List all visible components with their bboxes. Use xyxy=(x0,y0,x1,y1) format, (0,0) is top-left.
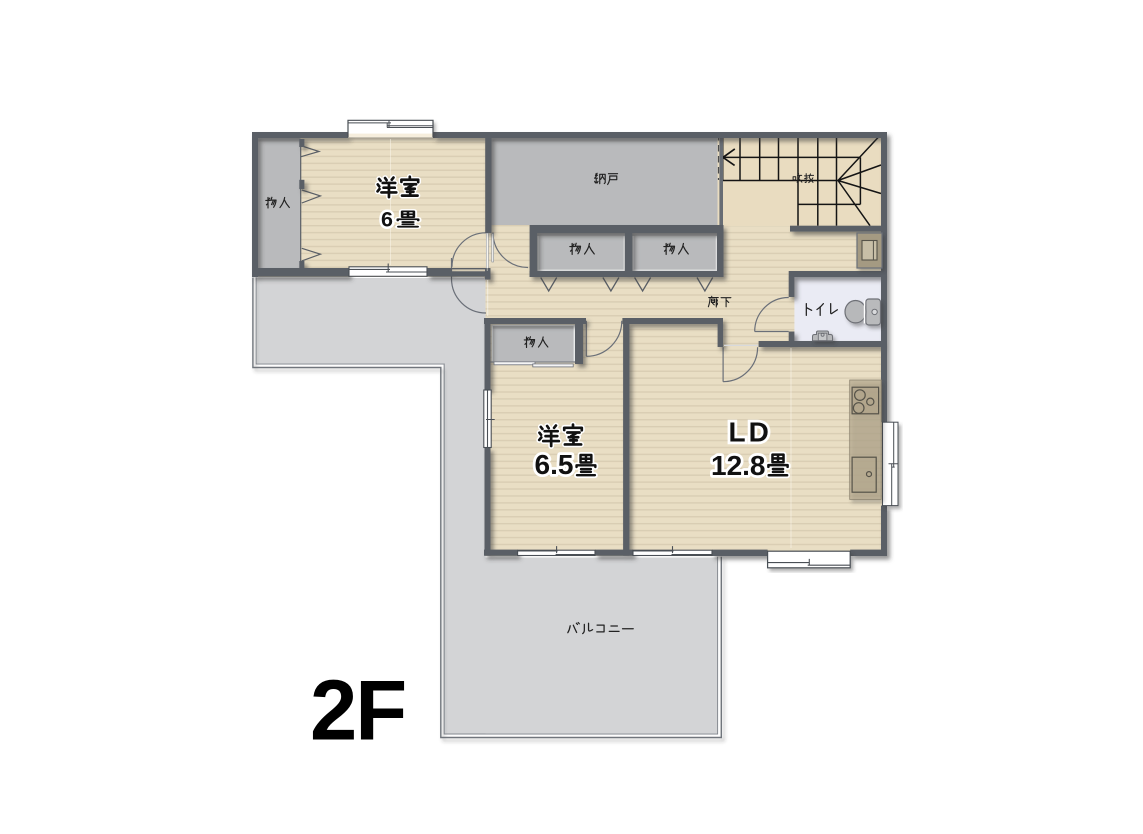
svg-text:6: 6 xyxy=(381,208,393,232)
svg-text:2F: 2F xyxy=(310,664,405,759)
svg-text:6.5: 6.5 xyxy=(535,449,574,480)
svg-text:LD: LD xyxy=(729,417,772,448)
svg-text:12.8: 12.8 xyxy=(711,450,766,481)
